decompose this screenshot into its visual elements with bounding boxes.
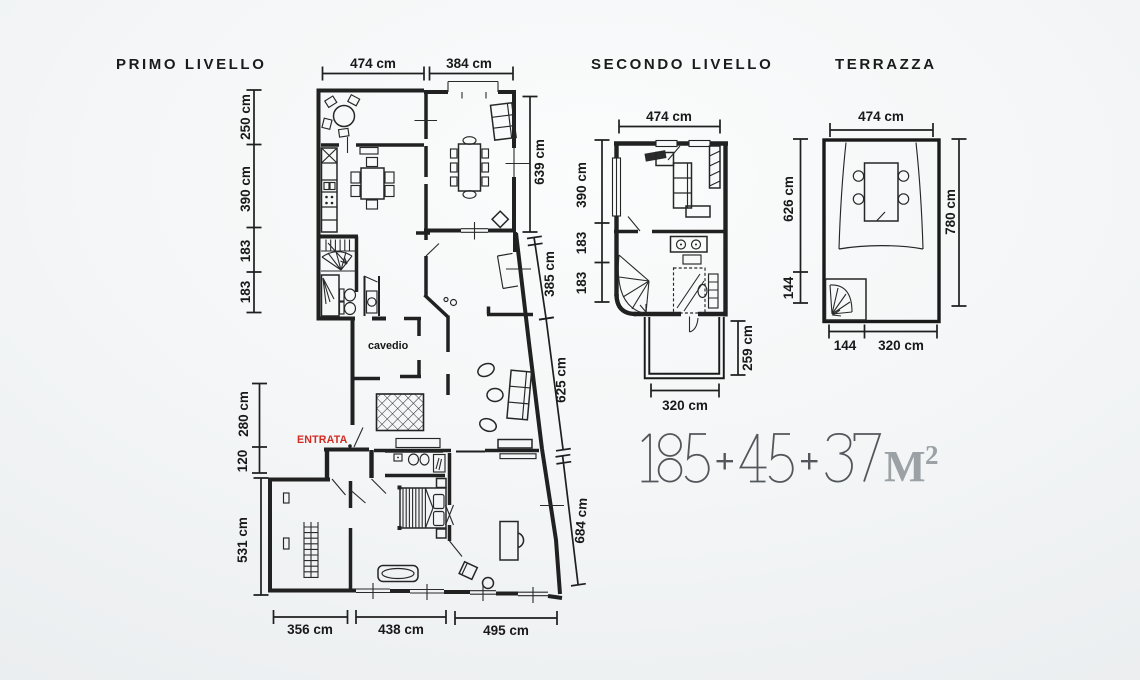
svg-text:474 cm: 474 cm	[350, 56, 396, 71]
svg-text:183: 183	[574, 231, 589, 254]
svg-text:2: 2	[925, 440, 939, 470]
svg-text:183: 183	[574, 271, 589, 294]
svg-text:183: 183	[238, 239, 253, 262]
svg-text:SECONDO LIVELLO: SECONDO LIVELLO	[591, 56, 773, 73]
svg-text:320 cm: 320 cm	[662, 398, 708, 413]
svg-text:ENTRATA: ENTRATA	[297, 434, 348, 446]
svg-text:390 cm: 390 cm	[238, 166, 253, 212]
svg-text:684 cm: 684 cm	[572, 497, 590, 544]
svg-text:626 cm: 626 cm	[781, 176, 796, 222]
svg-text:PRIMO LIVELLO: PRIMO LIVELLO	[116, 56, 266, 73]
svg-text:144: 144	[834, 338, 857, 353]
svg-text:120: 120	[235, 450, 250, 473]
svg-text:390 cm: 390 cm	[574, 162, 589, 208]
svg-text:474 cm: 474 cm	[858, 109, 904, 124]
svg-text:474 cm: 474 cm	[646, 109, 692, 124]
svg-text:495 cm: 495 cm	[483, 623, 529, 638]
svg-text:250 cm: 250 cm	[238, 94, 253, 140]
svg-text:280 cm: 280 cm	[236, 391, 251, 437]
svg-text:259 cm: 259 cm	[740, 325, 755, 371]
svg-text:780 cm: 780 cm	[943, 189, 958, 235]
svg-text:531 cm: 531 cm	[235, 517, 250, 563]
svg-text:cavedio: cavedio	[368, 340, 409, 352]
svg-text:M: M	[884, 442, 926, 491]
svg-text:625 cm: 625 cm	[554, 357, 569, 403]
svg-text:356 cm: 356 cm	[287, 622, 333, 637]
svg-text:385 cm: 385 cm	[542, 251, 557, 297]
svg-text:320 cm: 320 cm	[878, 338, 924, 353]
svg-text:384 cm: 384 cm	[446, 56, 492, 71]
svg-text:144: 144	[781, 276, 796, 299]
svg-text:438 cm: 438 cm	[378, 622, 424, 637]
svg-text:639 cm: 639 cm	[532, 139, 547, 185]
svg-text:TERRAZZA: TERRAZZA	[835, 56, 937, 73]
svg-text:183: 183	[238, 280, 253, 303]
